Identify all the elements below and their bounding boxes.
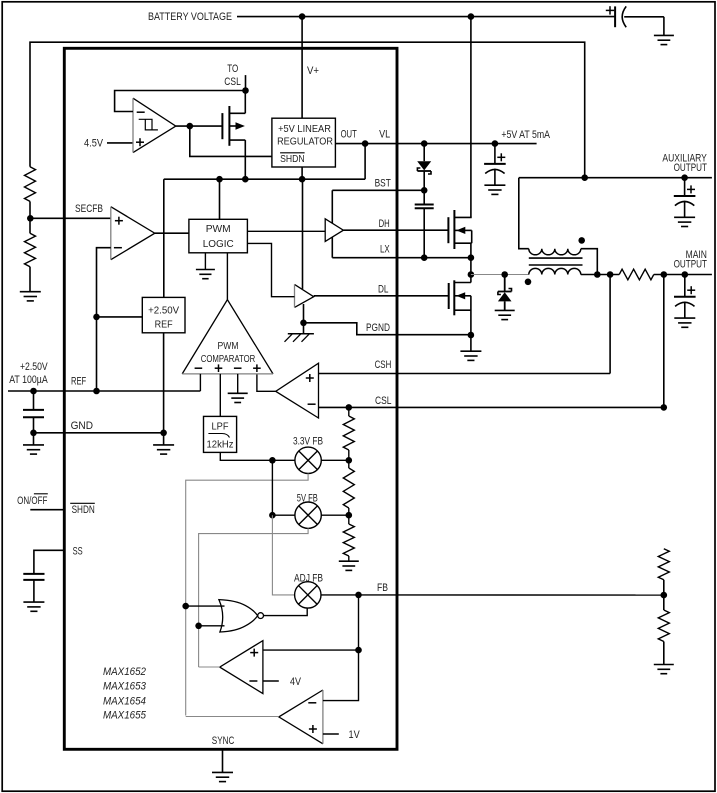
svg-text:4V: 4V: [290, 676, 302, 688]
svg-text:COMPARATOR: COMPARATOR: [201, 354, 256, 365]
svg-text:+2.50V: +2.50V: [20, 361, 48, 373]
svg-text:SHDN: SHDN: [72, 504, 95, 516]
svg-text:TO: TO: [227, 63, 238, 75]
svg-text:FB: FB: [377, 582, 388, 594]
svg-text:SYNC: SYNC: [212, 735, 235, 747]
svg-text:CSH: CSH: [375, 359, 392, 371]
svg-text:OUTPUT: OUTPUT: [674, 162, 707, 174]
svg-text:OUT: OUT: [341, 129, 357, 141]
svg-text:CSL: CSL: [224, 76, 241, 88]
svg-text:BATTERY VOLTAGE: BATTERY VOLTAGE: [148, 11, 232, 23]
svg-text:GND: GND: [71, 420, 93, 432]
svg-text:AT 100µA: AT 100µA: [9, 374, 48, 386]
svg-text:CSL: CSL: [375, 395, 392, 407]
svg-text:LX: LX: [380, 243, 390, 255]
svg-text:MAX1654: MAX1654: [103, 695, 146, 707]
svg-text:SHDN: SHDN: [280, 153, 305, 165]
svg-text:+2.50V: +2.50V: [148, 305, 179, 317]
svg-text:12kHz: 12kHz: [207, 439, 234, 451]
svg-text:MAX1655: MAX1655: [103, 710, 147, 722]
svg-text:V+: V+: [307, 65, 319, 77]
svg-text:SS: SS: [73, 546, 83, 558]
svg-text:ON/OFF: ON/OFF: [17, 495, 47, 507]
svg-text:+5V AT 5mA: +5V AT 5mA: [501, 129, 550, 141]
svg-text:DL: DL: [378, 284, 389, 296]
svg-text:MAX1653: MAX1653: [103, 680, 147, 692]
svg-text:VL: VL: [379, 129, 390, 141]
svg-text:REGULATOR: REGULATOR: [277, 136, 333, 148]
svg-text:MAX1652: MAX1652: [103, 666, 146, 678]
svg-text:PGND: PGND: [366, 322, 390, 334]
svg-text:ADJ FB: ADJ FB: [294, 572, 323, 584]
svg-text:DH: DH: [379, 218, 390, 230]
svg-text:PWM: PWM: [206, 223, 231, 235]
svg-text:4.5V: 4.5V: [84, 138, 104, 150]
svg-text:LOGIC: LOGIC: [203, 238, 234, 250]
svg-text:+5V LINEAR: +5V LINEAR: [278, 123, 331, 135]
svg-text:1V: 1V: [349, 729, 361, 741]
svg-text:REF: REF: [71, 375, 86, 387]
svg-text:REF: REF: [155, 319, 173, 331]
svg-text:LPF: LPF: [212, 421, 229, 433]
svg-text:OUTPUT: OUTPUT: [674, 259, 707, 271]
svg-text:SECFB: SECFB: [75, 203, 103, 215]
svg-text:PWM: PWM: [218, 341, 239, 352]
svg-text:3.3V FB: 3.3V FB: [293, 435, 323, 447]
svg-text:BST: BST: [375, 177, 391, 189]
